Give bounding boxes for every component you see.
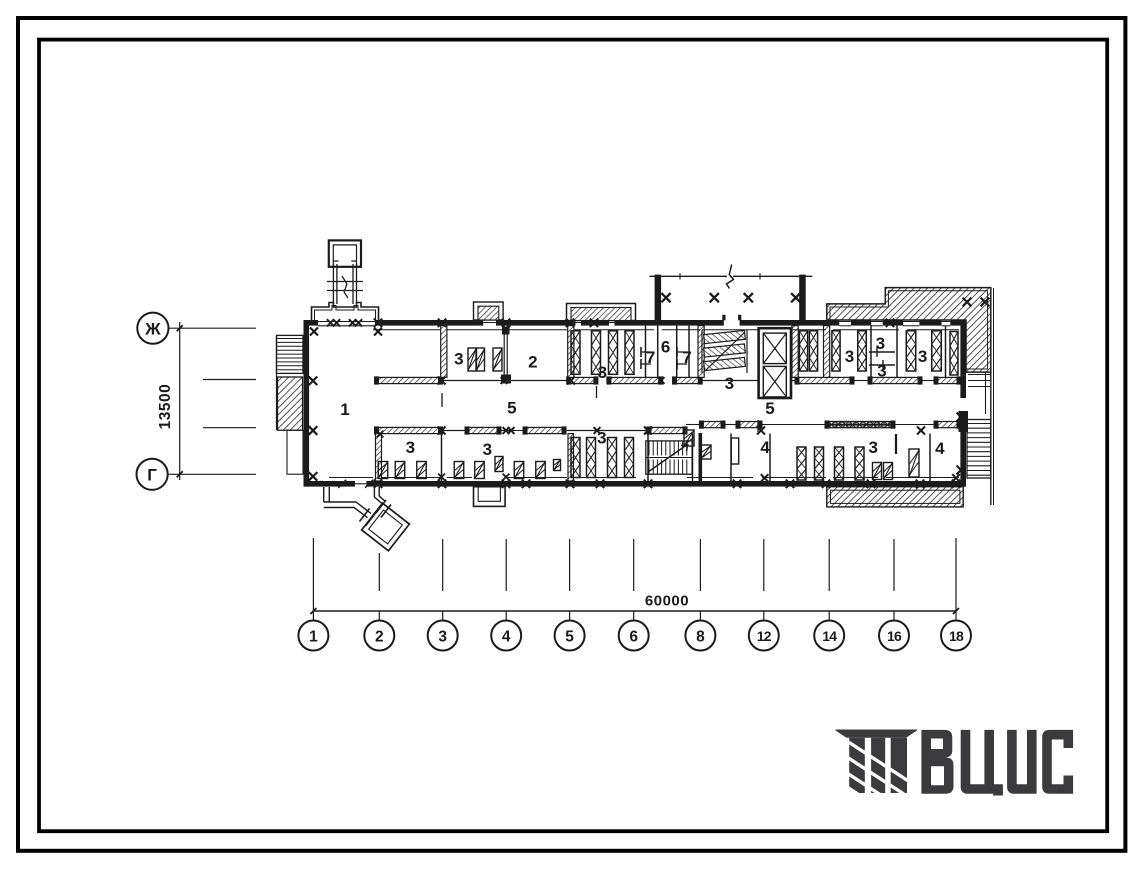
svg-text:5: 5: [507, 399, 516, 418]
svg-text:3: 3: [845, 347, 854, 366]
svg-text:5: 5: [765, 399, 774, 418]
svg-text:4: 4: [502, 629, 511, 646]
svg-text:3: 3: [876, 334, 885, 353]
svg-text:7: 7: [646, 348, 655, 367]
svg-text:3: 3: [868, 438, 877, 457]
svg-text:3: 3: [598, 363, 607, 382]
svg-text:3: 3: [597, 429, 606, 448]
svg-text:Ж: Ж: [144, 320, 161, 339]
svg-text:3: 3: [918, 347, 927, 366]
svg-text:12: 12: [757, 628, 772, 644]
svg-text:13500: 13500: [157, 384, 174, 430]
svg-text:3: 3: [438, 629, 447, 646]
svg-text:16: 16: [887, 628, 902, 644]
svg-text:6: 6: [629, 629, 638, 646]
svg-text:7: 7: [682, 348, 691, 367]
svg-text:3: 3: [877, 361, 886, 380]
svg-text:8: 8: [696, 629, 705, 646]
svg-text:18: 18: [949, 628, 964, 644]
svg-text:14: 14: [822, 628, 837, 644]
svg-text:1: 1: [340, 400, 349, 419]
svg-text:Г: Г: [147, 466, 157, 485]
svg-text:4: 4: [935, 439, 945, 458]
svg-text:3: 3: [483, 440, 492, 459]
svg-text:3: 3: [725, 374, 734, 393]
svg-text:2: 2: [375, 629, 384, 646]
svg-text:6: 6: [661, 338, 670, 357]
svg-text:60000: 60000: [645, 593, 689, 610]
svg-text:1: 1: [309, 629, 318, 646]
svg-text:4: 4: [760, 438, 770, 457]
svg-text:3: 3: [454, 350, 463, 369]
svg-text:5: 5: [565, 629, 574, 646]
svg-text:2: 2: [528, 352, 537, 371]
svg-text:3: 3: [406, 438, 415, 457]
